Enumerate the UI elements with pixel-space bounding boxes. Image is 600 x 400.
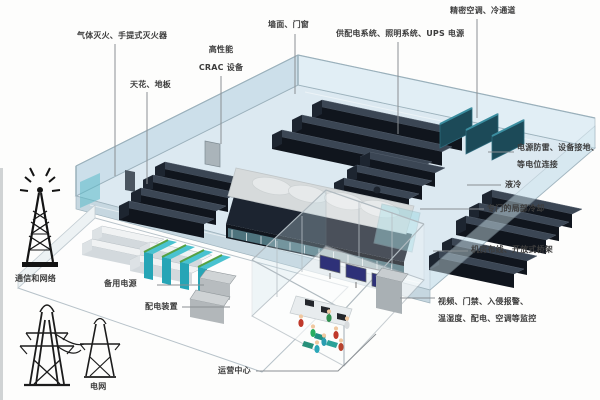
- crac-wall-unit: [205, 141, 220, 167]
- callout-grounding-line2: 等电位连接: [517, 156, 599, 173]
- callout-crac-line1: 高性能: [189, 41, 253, 59]
- callout-telecom-network: 通信和网络: [15, 274, 56, 284]
- datacenter-infographic: 气体灭火、手提式灭火器 高性能 CRAC 设备 天花、地板 墙面、门窗 供配电系…: [0, 0, 600, 400]
- callout-grounding-line1: 电源防雷、设备接地、: [517, 139, 599, 156]
- callout-ceiling-floor: 天花、地板: [130, 80, 171, 90]
- callout-walls-doors: 墙面、门窗: [268, 20, 309, 30]
- callout-local-cooling: 专门的局部冷却: [487, 204, 544, 214]
- callout-monitoring: 视频、门禁、入侵报警、 温湿度、配电、空调等监控: [438, 293, 536, 327]
- callout-fire-suppression: 气体灭火、手提式灭火器: [77, 31, 167, 41]
- callout-precision-ac: 精密空调、冷通道: [450, 6, 516, 16]
- callout-power-distribution: 配电装置: [145, 302, 178, 312]
- callout-power-grid: 电网: [90, 382, 106, 392]
- callout-cabling-tray: 机房布线、开放式桥架: [471, 245, 553, 255]
- callout-crac: 高性能 CRAC 设备: [189, 41, 253, 77]
- callout-monitoring-line2: 温湿度、配电、空调等监控: [438, 310, 536, 327]
- callout-crac-line2: CRAC 设备: [189, 59, 253, 77]
- callout-power-ups: 供配电系统、照明系统、UPS 电源: [336, 29, 464, 39]
- callout-backup-power: 备用电源: [104, 279, 137, 289]
- callout-grounding: 电源防雷、设备接地、 等电位连接: [517, 139, 599, 173]
- callout-liquid-cooling: 液冷: [505, 180, 521, 190]
- local-cooling-unit: [374, 187, 381, 194]
- callout-operations-center: 运营中心: [218, 366, 251, 376]
- callout-monitoring-line1: 视频、门禁、入侵报警、: [438, 293, 536, 310]
- datacenter-illustration: [0, 0, 600, 400]
- fire-extinguisher-cabinet: [125, 170, 135, 192]
- image-edge-artifact: [0, 168, 3, 400]
